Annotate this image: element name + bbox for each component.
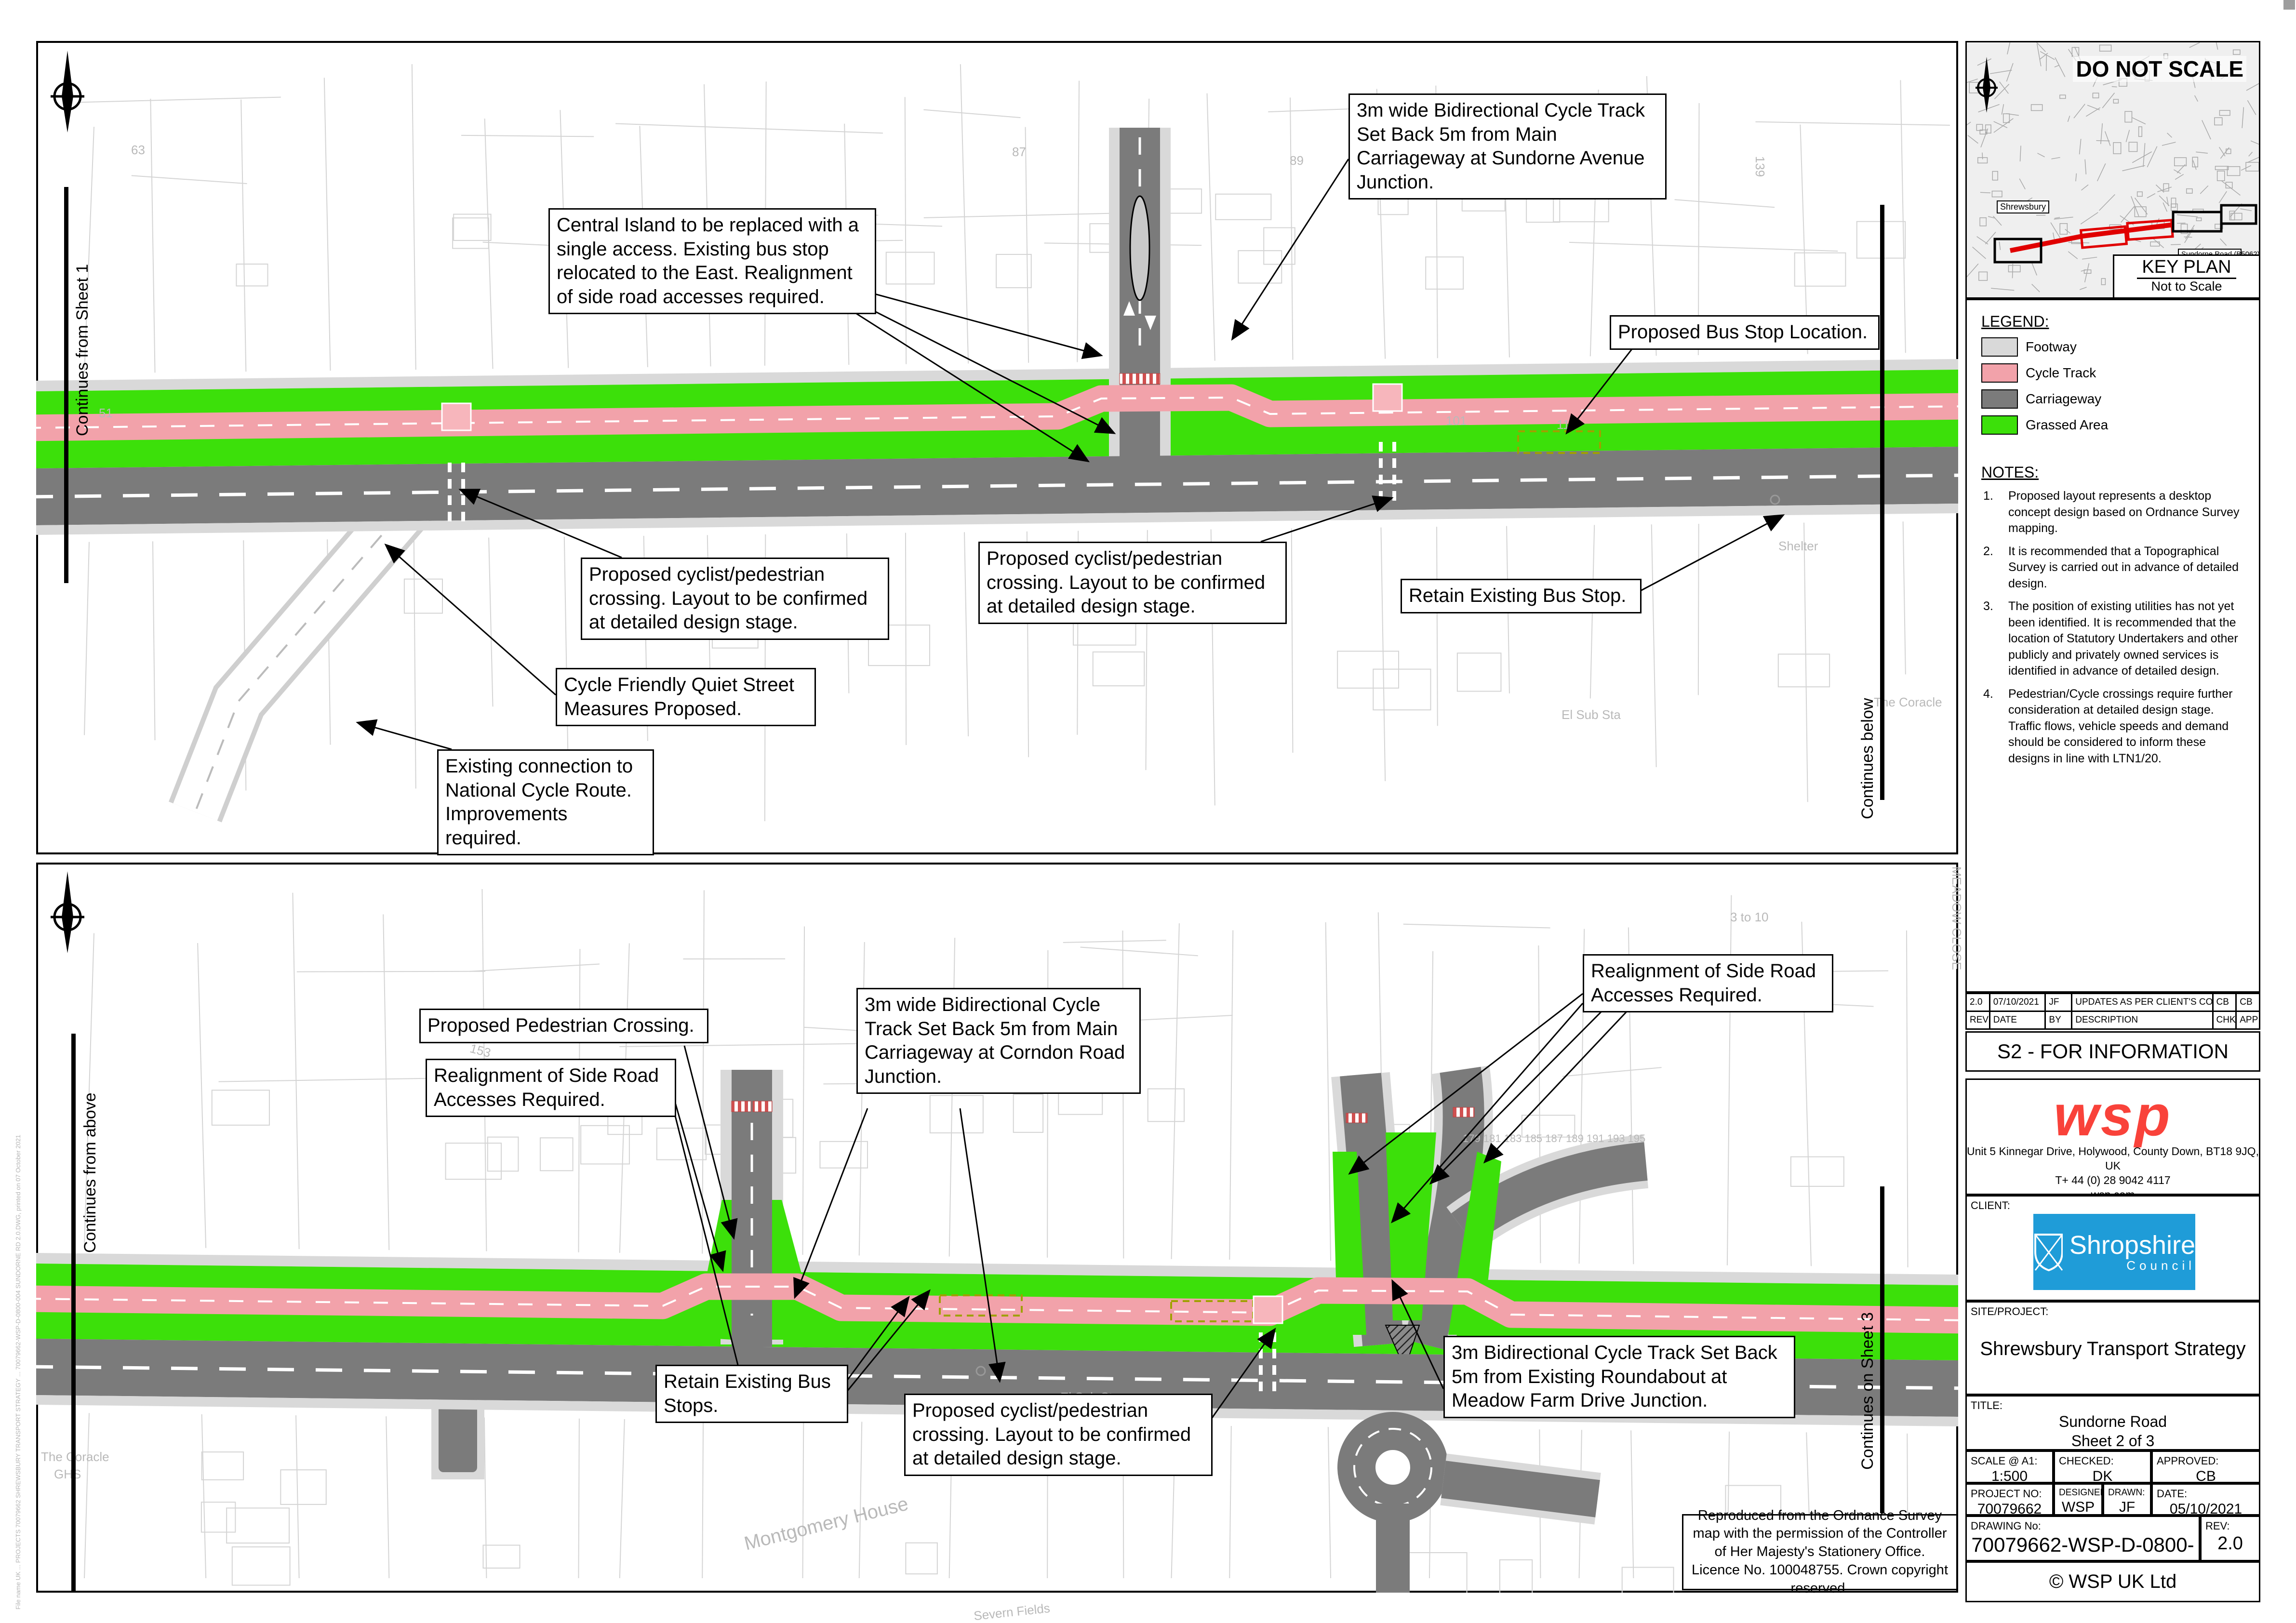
notes-list: 1.Proposed layout represents a desktop c… bbox=[1967, 488, 2259, 767]
rev-label: REV: bbox=[2202, 1517, 2259, 1532]
map-base-label: 87 bbox=[1012, 145, 1026, 160]
revision-cell: REV bbox=[1966, 1011, 1990, 1029]
drawn-label: DRAWN: bbox=[2104, 1485, 2150, 1498]
revision-cell: DATE bbox=[1989, 1011, 2045, 1029]
match-line bbox=[64, 187, 68, 583]
legend-label: Grassed Area bbox=[2026, 417, 2108, 433]
rev-cell: REV: 2.0 bbox=[2200, 1516, 2260, 1561]
key-plan-subtitle: Not to Scale bbox=[2114, 279, 2259, 294]
scale-label: SCALE @ A1: bbox=[1967, 1452, 2052, 1467]
map-base-label: GHS bbox=[54, 1467, 81, 1482]
map-base-label: Severn Fields bbox=[973, 1601, 1051, 1623]
map-base-label: 51 bbox=[99, 406, 113, 421]
revision-cell: CB bbox=[2236, 994, 2260, 1011]
drawing-no-cell: DRAWING No: 70079662-WSP-D-0800-004 bbox=[1965, 1516, 2200, 1561]
map-base-label: Shelter bbox=[1778, 539, 1818, 554]
copyright: © WSP UK Ltd bbox=[1965, 1561, 2260, 1602]
legend-item: Carriageway bbox=[1981, 389, 2259, 409]
north-arrow-icon bbox=[1976, 57, 1998, 115]
legend-swatch bbox=[1981, 415, 2018, 435]
annotation-callout: Proposed Bus Stop Location. bbox=[1610, 315, 1880, 350]
legend-label: Cycle Track bbox=[2026, 365, 2096, 381]
company-phone: T+ 44 (0) 28 9042 4117 bbox=[1967, 1173, 2259, 1188]
drawing-no-label: DRAWING No: bbox=[1967, 1517, 2199, 1532]
match-line bbox=[1880, 1186, 1884, 1513]
title-label: TITLE: bbox=[1967, 1397, 2259, 1412]
revision-cell: 07/10/2021 bbox=[1989, 994, 2045, 1011]
checked-value: DK bbox=[2055, 1468, 2150, 1485]
project-label: SITE/PROJECT: bbox=[1967, 1303, 2259, 1318]
map-base-label: El Sub Sta bbox=[1562, 707, 1621, 722]
annotation-callout: Proposed cyclist/pedestrian crossing. La… bbox=[581, 558, 889, 640]
legend-item: Grassed Area bbox=[1981, 415, 2259, 435]
scale-cell: SCALE @ A1: 1:500 bbox=[1965, 1450, 2054, 1483]
annotation-callout: Retain Existing Bus Stop. bbox=[1401, 579, 1642, 613]
annotation-callout: Existing connection to National Cycle Ro… bbox=[437, 749, 654, 855]
project-no-cell: PROJECT NO: 70079662 bbox=[1965, 1483, 2054, 1516]
annotation-callout: Realignment of Side Road Accesses Requir… bbox=[426, 1059, 676, 1117]
company-box: wsp Unit 5 Kinnegar Drive, Holywood, Cou… bbox=[1965, 1078, 2260, 1195]
checked-label: CHECKED: bbox=[2055, 1452, 2150, 1467]
drawn-value: JF bbox=[2104, 1499, 2150, 1516]
key-plan-town-label: Shrewsbury bbox=[1997, 200, 2049, 213]
designed-cell: DESIGNED: WSP bbox=[2054, 1483, 2103, 1516]
legend-item: Footway bbox=[1981, 337, 2259, 357]
designed-value: WSP bbox=[2055, 1499, 2101, 1516]
legend-swatch bbox=[1981, 363, 2018, 383]
annotation-callout: Proposed Pedestrian Crossing. bbox=[419, 1009, 708, 1043]
map-base-label: MEADOW CLOSE bbox=[1949, 866, 1964, 970]
legend-notes-box: LEGEND: FootwayCycle TrackCarriagewayGra… bbox=[1965, 299, 2260, 993]
note-item: 2.It is recommended that a Topographical… bbox=[1983, 544, 2242, 592]
map-base-label: 63 bbox=[131, 143, 145, 158]
drawing-title-line1: Sundorne Road bbox=[1967, 1412, 2259, 1431]
date-cell: DATE: 05/10/2021 bbox=[2151, 1483, 2260, 1516]
legend-swatch bbox=[1981, 337, 2018, 357]
drawing-sheet: File name UK ... PROJECTS 70079662 SHREW… bbox=[0, 0, 2296, 1623]
company-address: Unit 5 Kinnegar Drive, Holywood, County … bbox=[1967, 1144, 2259, 1173]
match-label-top-right: Continues below bbox=[1858, 698, 1877, 819]
map-base-label: 101 bbox=[1446, 413, 1467, 428]
map-base-label: 111 bbox=[1557, 417, 1576, 432]
map-base-label: 179 181 183 185 187 189 191 193 195 bbox=[1463, 1132, 1645, 1145]
scale-value: 1:500 bbox=[1967, 1468, 2052, 1485]
legend-swatch bbox=[1981, 389, 2018, 409]
approved-label: APPROVED: bbox=[2153, 1452, 2259, 1467]
key-plan-caption: KEY PLAN Not to Scale bbox=[2113, 254, 2259, 297]
client-subname: Council bbox=[2069, 1259, 2195, 1272]
revision-cell: APP bbox=[2236, 1011, 2260, 1029]
legend-items: FootwayCycle TrackCarriagewayGrassed Are… bbox=[1967, 337, 2259, 435]
annotation-callout: Realignment of Side Road Accesses Requir… bbox=[1583, 954, 1833, 1012]
revision-cell: CB bbox=[2213, 994, 2236, 1011]
notes-title: NOTES: bbox=[1981, 464, 2259, 481]
project-no-label: PROJECT NO: bbox=[1967, 1485, 2052, 1500]
checked-cell: CHECKED: DK bbox=[2054, 1450, 2151, 1483]
revision-cell: 2.0 bbox=[1966, 994, 1990, 1011]
designed-label: DESIGNED: bbox=[2055, 1485, 2101, 1498]
shield-icon bbox=[2033, 1233, 2063, 1271]
drawn-cell: DRAWN: JF bbox=[2103, 1483, 2151, 1516]
legend-title: LEGEND: bbox=[1981, 313, 2259, 331]
north-arrow-icon bbox=[51, 51, 84, 135]
project-box: SITE/PROJECT: Shrewsbury Transport Strat… bbox=[1965, 1301, 2260, 1395]
drawing-title-line2: Sheet 2 of 3 bbox=[1967, 1431, 2259, 1450]
client-box: CLIENT: Shropshire Council bbox=[1965, 1195, 2260, 1301]
revision-cell: BY bbox=[2045, 1011, 2072, 1029]
key-plan: DO NOT SCALE Shrewsbury Sundorne Road (B… bbox=[1965, 41, 2260, 299]
project-name: Shrewsbury Transport Strategy bbox=[1967, 1338, 2259, 1360]
rev-value: 2.0 bbox=[2202, 1533, 2259, 1554]
wsp-logo: wsp bbox=[1967, 1087, 2259, 1144]
approved-value: CB bbox=[2153, 1468, 2259, 1485]
map-base-label: 139 bbox=[1752, 156, 1767, 177]
note-item: 3.The position of existing utilities has… bbox=[1983, 599, 2242, 679]
date-label: DATE: bbox=[2153, 1485, 2259, 1500]
os-copyright-note: Reproduced from the Ordnance Survey map … bbox=[1682, 1514, 1958, 1590]
north-arrow-icon bbox=[51, 871, 84, 956]
margin-filename-note: File name UK ... PROJECTS 70079662 SHREW… bbox=[14, 1135, 22, 1610]
annotation-callout: Proposed cyclist/pedestrian crossing. La… bbox=[904, 1394, 1213, 1476]
revision-cell: CHK bbox=[2213, 1011, 2236, 1029]
key-plan-title: KEY PLAN bbox=[2137, 256, 2236, 279]
match-label-top-left: Continues from Sheet 1 bbox=[73, 264, 92, 436]
legend-label: Carriageway bbox=[2026, 391, 2101, 407]
client-name: Shropshire bbox=[2069, 1232, 2195, 1258]
annotation-callout: Cycle Friendly Quiet Street Measures Pro… bbox=[556, 668, 816, 726]
map-base-label: 89 bbox=[1290, 153, 1304, 168]
annotation-callout: Retain Existing Bus Stops. bbox=[655, 1365, 848, 1423]
map-canvas-top bbox=[36, 41, 1958, 854]
title-box: TITLE: Sundorne Road Sheet 2 of 3 bbox=[1965, 1395, 2260, 1450]
revision-table: 2.007/10/2021JFUPDATES AS PER CLIENT'S C… bbox=[1965, 993, 2260, 1030]
revision-cell: UPDATES AS PER CLIENT'S COMMENTS bbox=[2072, 994, 2213, 1011]
annotation-callout: 3m wide Bidirectional Cycle Track Set Ba… bbox=[856, 988, 1141, 1094]
shropshire-council-logo: Shropshire Council bbox=[2033, 1214, 2195, 1290]
suitability-status: S2 - FOR INFORMATION bbox=[1965, 1031, 2260, 1072]
annotation-callout: 3m wide Bidirectional Cycle Track Set Ba… bbox=[1348, 93, 1667, 200]
annotation-callout: 3m Bidirectional Cycle Track Set Back 5m… bbox=[1443, 1336, 1795, 1418]
map-base-label: 3 to 10 bbox=[1730, 910, 1769, 925]
revision-cell: DESCRIPTION bbox=[2072, 1011, 2213, 1029]
date-value: 05/10/2021 bbox=[2153, 1501, 2259, 1517]
legend-item: Cycle Track bbox=[1981, 363, 2259, 383]
match-line bbox=[1880, 205, 1884, 800]
note-item: 1.Proposed layout represents a desktop c… bbox=[1983, 488, 2242, 537]
project-no-value: 70079662 bbox=[1967, 1501, 2052, 1517]
client-label: CLIENT: bbox=[1967, 1197, 2259, 1212]
annotation-callout: Central Island to be replaced with a sin… bbox=[548, 208, 876, 314]
match-line bbox=[71, 1034, 76, 1591]
approved-cell: APPROVED: CB bbox=[2151, 1450, 2260, 1483]
legend-label: Footway bbox=[2026, 339, 2077, 355]
window-corner-artifact bbox=[2283, 0, 2295, 10]
revision-cell: JF bbox=[2045, 994, 2072, 1011]
annotation-callout: Proposed cyclist/pedestrian crossing. La… bbox=[978, 542, 1287, 624]
do-not-scale-label: DO NOT SCALE bbox=[2073, 56, 2246, 82]
note-item: 4.Pedestrian/Cycle crossings require fur… bbox=[1983, 686, 2242, 767]
match-label-bottom-left: Continues from above bbox=[81, 1092, 100, 1253]
match-label-bottom-right: Continues on Sheet 3 bbox=[1858, 1312, 1877, 1470]
